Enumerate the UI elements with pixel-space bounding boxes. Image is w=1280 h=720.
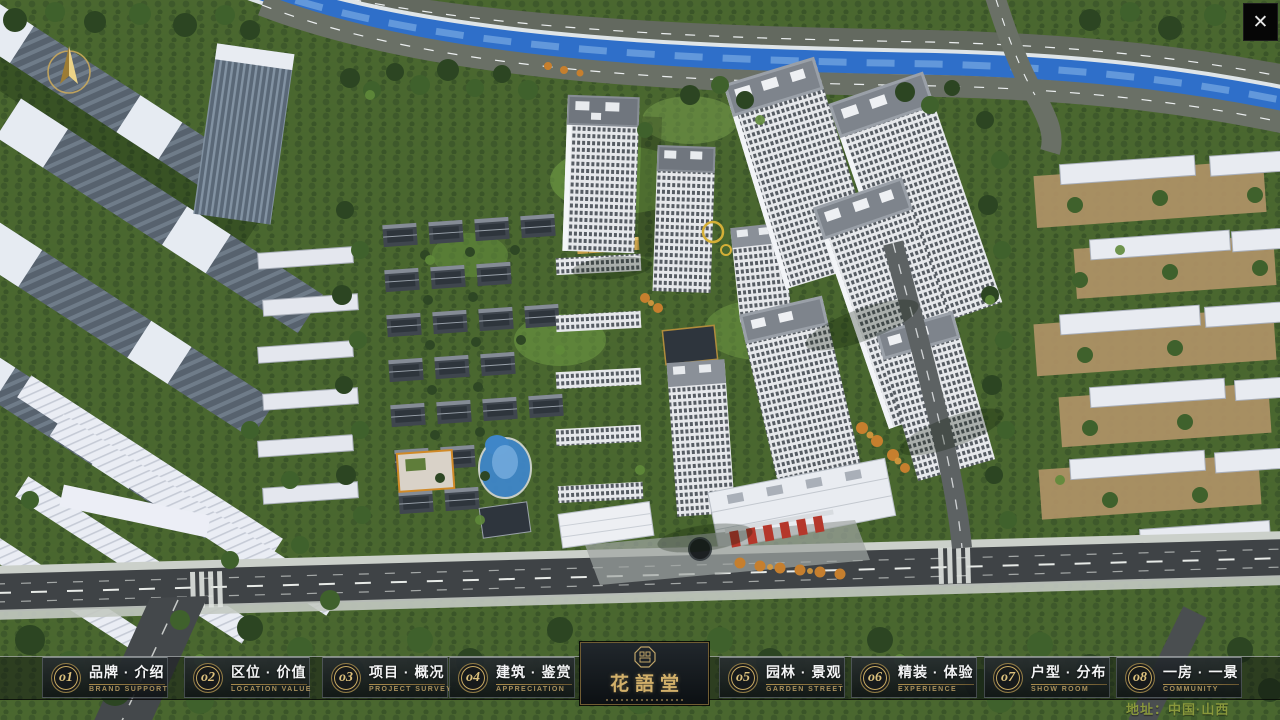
logo-caption-line bbox=[606, 699, 684, 701]
seal-icon bbox=[634, 646, 656, 668]
project-logo-panel[interactable]: 花語堂 bbox=[580, 642, 709, 705]
bottom-navbar: o1 品牌 · 介绍 BRAND SUPPORT o2 区位 · 价值 LOCA… bbox=[0, 656, 1280, 700]
nav-number: o1 bbox=[59, 670, 73, 686]
gold-divider bbox=[496, 684, 572, 685]
nav-label-zh: 一房 · 一景 bbox=[1163, 662, 1238, 682]
project-address-label: 地址：中国·山西 bbox=[1126, 699, 1229, 718]
project-logo-title: 花語堂 bbox=[610, 669, 685, 696]
nav-number-badge: o1 bbox=[51, 663, 81, 693]
nav-label-zh: 户型 · 分布 bbox=[1031, 662, 1106, 682]
presentation-window: ✕ o1 品牌 · 介绍 BRAND SUPPORT o2 区位 · 价值 LO… bbox=[0, 0, 1280, 720]
gold-divider bbox=[898, 684, 974, 685]
nav-number: o2 bbox=[201, 670, 215, 686]
nav-item-location-value[interactable]: o2 区位 · 价值 LOCATION VALUE bbox=[184, 657, 310, 698]
gold-divider bbox=[231, 684, 307, 685]
nav-label-zh: 品牌 · 介绍 bbox=[89, 662, 164, 682]
nav-label-en: APPRECIATION bbox=[496, 686, 565, 693]
nav-label-en: GARDEN STREET bbox=[766, 686, 844, 693]
nav-label-zh: 区位 · 价值 bbox=[231, 662, 306, 682]
nav-label-en: EXPERIENCE bbox=[898, 686, 957, 693]
nav-number-badge: o3 bbox=[331, 663, 361, 693]
nav-item-floorplan-distribution[interactable]: o7 户型 · 分布 SHOW ROOM bbox=[984, 657, 1110, 698]
nav-item-finishing-experience[interactable]: o6 精装 · 体验 EXPERIENCE bbox=[851, 657, 977, 698]
nav-item-architecture-appreciation[interactable]: o4 建筑 · 鉴赏 APPRECIATION bbox=[449, 657, 575, 698]
north-compass-icon bbox=[40, 42, 98, 108]
gold-divider bbox=[766, 684, 842, 685]
nav-number: o7 bbox=[1001, 670, 1015, 686]
nav-label-en: BRAND SUPPORT bbox=[89, 686, 168, 693]
nav-number-badge: o4 bbox=[458, 663, 488, 693]
nav-label-zh: 建筑 · 鉴赏 bbox=[496, 662, 571, 682]
gold-divider bbox=[1163, 684, 1239, 685]
nav-number-badge: o5 bbox=[728, 663, 758, 693]
nav-number: o5 bbox=[736, 670, 750, 686]
nav-number-badge: o6 bbox=[860, 663, 890, 693]
gold-divider bbox=[369, 684, 445, 685]
nav-item-garden-landscape[interactable]: o5 园林 · 景观 GARDEN STREET bbox=[719, 657, 845, 698]
nav-item-room-view[interactable]: o8 一房 · 一景 COMMUNITY bbox=[1116, 657, 1242, 698]
gold-divider bbox=[1031, 684, 1107, 685]
nav-number: o8 bbox=[1133, 670, 1147, 686]
masterplan-3d-render bbox=[0, 0, 1280, 720]
nav-item-brand-intro[interactable]: o1 品牌 · 介绍 BRAND SUPPORT bbox=[42, 657, 168, 698]
nav-label-zh: 园林 · 景观 bbox=[766, 662, 841, 682]
nav-label-en: PROJECT SURVEY bbox=[369, 686, 452, 693]
nav-label-en: LOCATION VALUE bbox=[231, 686, 312, 693]
nav-number: o6 bbox=[868, 670, 882, 686]
nav-number-badge: o8 bbox=[1125, 663, 1155, 693]
nav-label-en: SHOW ROOM bbox=[1031, 686, 1089, 693]
close-icon: ✕ bbox=[1253, 11, 1269, 34]
nav-number-badge: o7 bbox=[993, 663, 1023, 693]
nav-number: o3 bbox=[339, 670, 353, 686]
nav-number: o4 bbox=[466, 670, 480, 686]
nav-item-project-overview[interactable]: o3 项目 · 概况 PROJECT SURVEY bbox=[322, 657, 448, 698]
gold-divider bbox=[89, 684, 165, 685]
nav-label-en: COMMUNITY bbox=[1163, 686, 1219, 693]
nav-label-zh: 项目 · 概况 bbox=[369, 662, 444, 682]
close-button[interactable]: ✕ bbox=[1243, 3, 1278, 41]
nav-number-badge: o2 bbox=[193, 663, 223, 693]
nav-label-zh: 精装 · 体验 bbox=[898, 662, 973, 682]
